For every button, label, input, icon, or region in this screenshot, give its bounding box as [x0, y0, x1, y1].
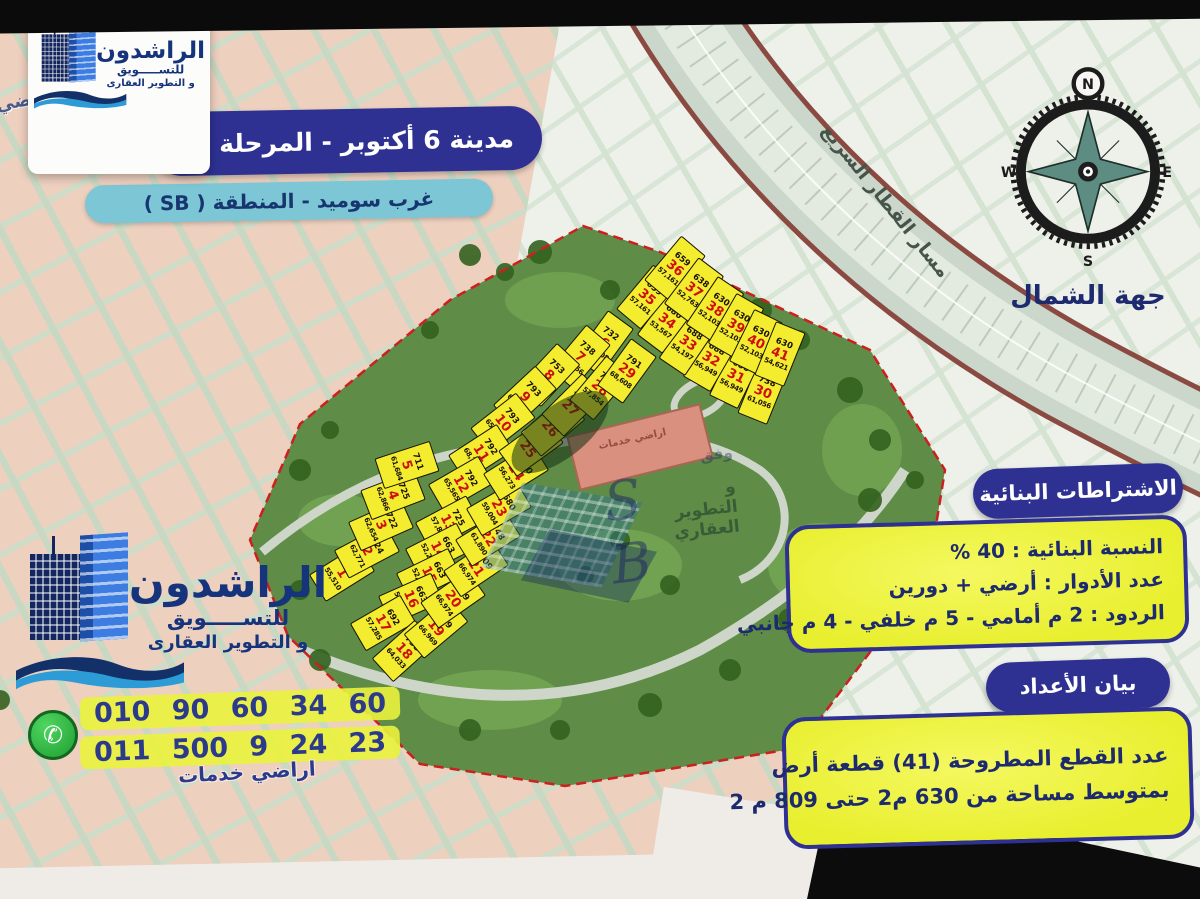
logo-text: الراشدون للتســـــويق و التطوير العقارى	[96, 39, 206, 89]
company-name: الراشدون	[96, 39, 206, 62]
logo-building-dark-icon	[30, 554, 82, 640]
counts-box: عدد القطع المطروحة (41) قطعة أرض بمتوسط …	[781, 706, 1195, 849]
company-tagline-1: للتســـــويق	[96, 63, 206, 76]
company-tagline-1: للتســـــويق	[128, 606, 328, 630]
counts-header: بيان الأعداد	[985, 657, 1171, 713]
company-logo: الراشدون للتســـــويق و التطوير العقارى	[34, 20, 206, 118]
compass-w: W	[1001, 165, 1017, 181]
north-direction-label: جهة الشمال	[1000, 281, 1176, 311]
building-requirements-box: النسبة البنائية : 40 % عدد الأدوار : أرض…	[784, 514, 1189, 653]
whatsapp-glyph: ✆	[43, 721, 63, 749]
compass-s: S	[1083, 254, 1093, 270]
compass-n: N	[1082, 77, 1094, 93]
logo-building-blue-icon	[80, 532, 128, 641]
map-poster: 640155,510724262,771722362,654725462,866…	[0, 0, 1200, 899]
logo-text: الراشدون للتســـــويق و التطوير العقارى	[128, 562, 328, 653]
compass-rose: N W E S جهة الشمال	[1000, 66, 1176, 311]
subtitle-banner: غرب سوميد - المنطقة ( SB )	[85, 178, 494, 223]
page-subtitle: غرب سوميد - المنطقة ( SB )	[144, 186, 435, 215]
logo-building-dark-icon	[42, 34, 71, 81]
company-tagline-2: و التطوير العقارى	[96, 77, 206, 89]
contact-block: ✆ 010 90 60 34 60 011 500 9 24 23	[28, 692, 400, 770]
company-name: الراشدون	[128, 562, 328, 604]
company-tagline-2: و التطوير العقارى	[128, 632, 328, 653]
building-requirements-header: الاشتراطات البنائية	[972, 462, 1184, 519]
compass-icon: N W E S	[1000, 66, 1176, 275]
company-logo-large: الراشدون للتســـــويق و التطوير العقارى	[16, 528, 328, 706]
phone-number-1: 010 90 60 34 60	[80, 686, 401, 730]
flyer-photo: 640155,510724262,771722362,654725462,866…	[0, 0, 1200, 899]
whatsapp-icon: ✆	[28, 710, 78, 760]
compass-e: E	[1162, 165, 1172, 181]
